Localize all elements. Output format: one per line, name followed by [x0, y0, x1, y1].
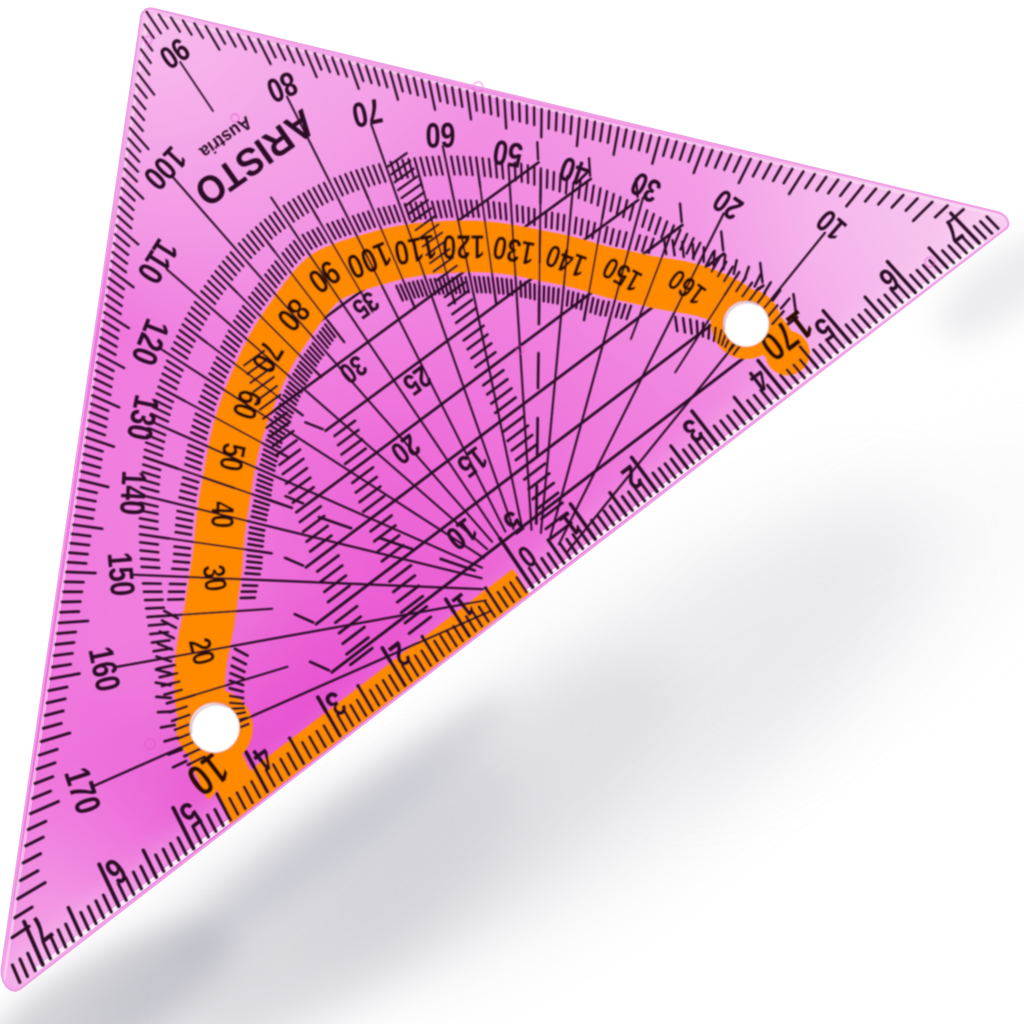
svg-text:150: 150	[100, 551, 142, 598]
svg-text:140: 140	[112, 470, 154, 516]
svg-text:60: 60	[425, 115, 455, 155]
svg-text:40: 40	[203, 501, 240, 529]
svg-text:120: 120	[442, 227, 485, 264]
svg-text:30: 30	[196, 563, 234, 593]
svg-text:130: 130	[490, 228, 538, 272]
